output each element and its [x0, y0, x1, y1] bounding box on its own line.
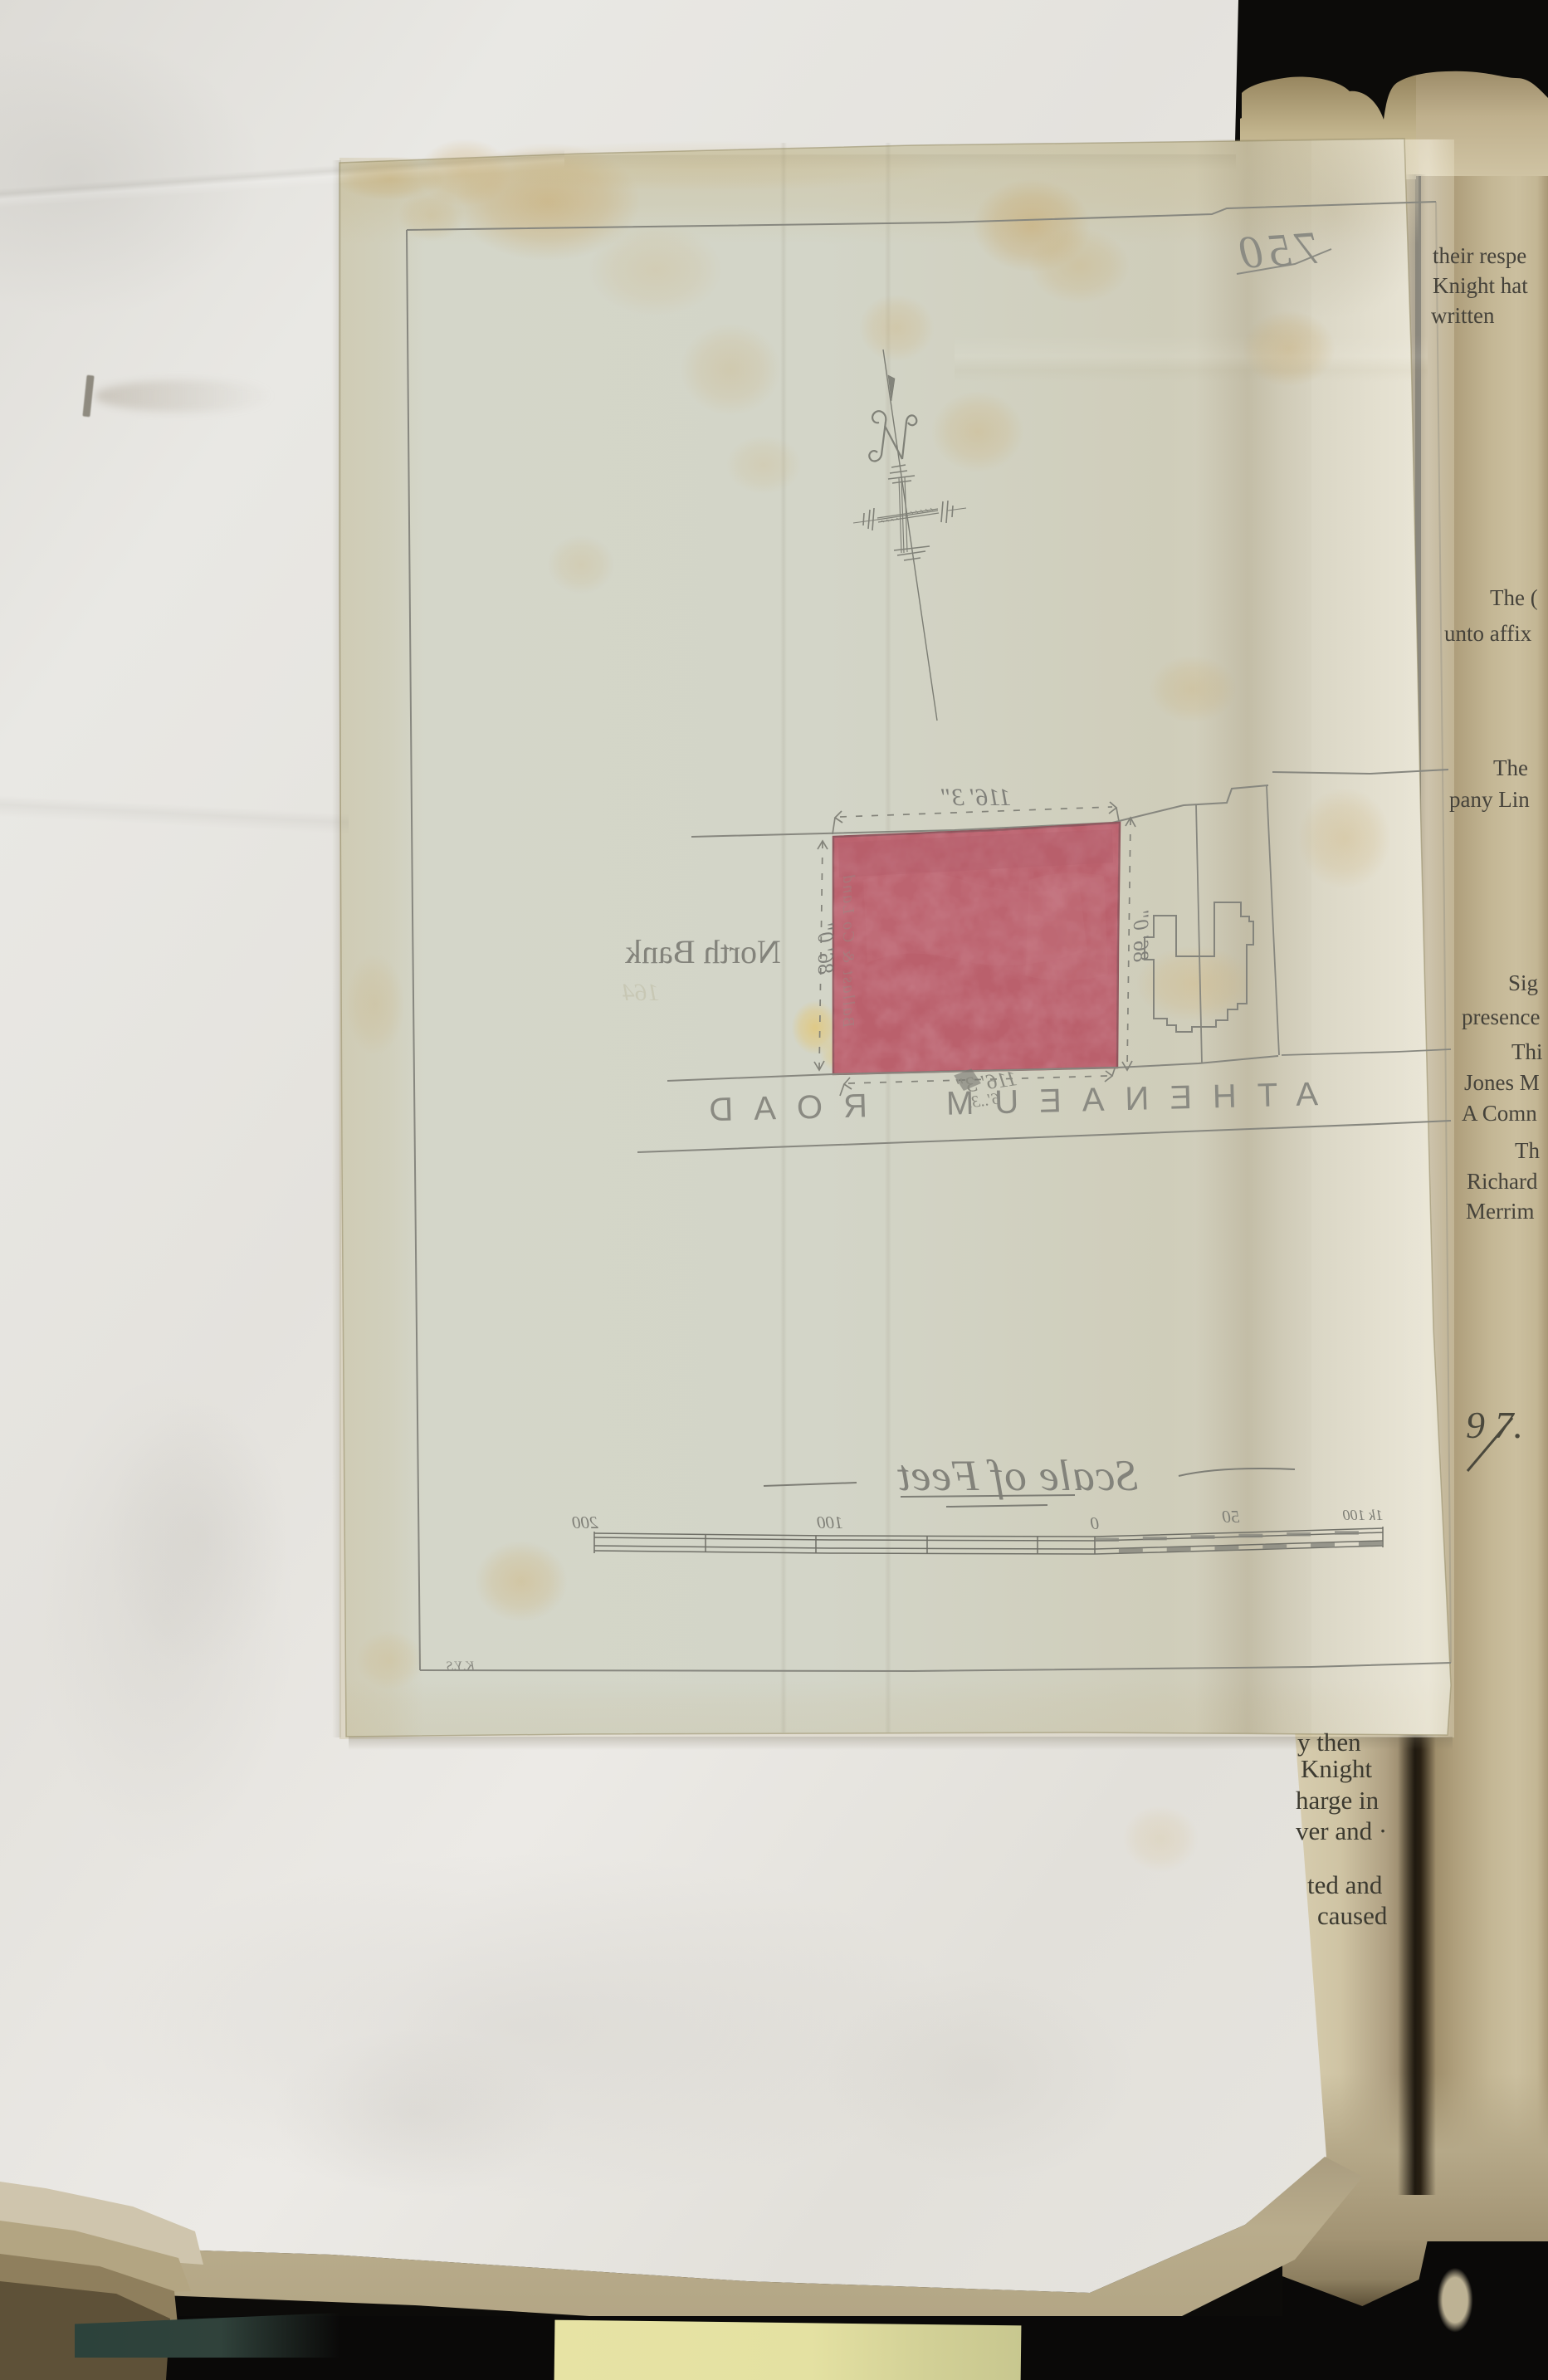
svg-text:ATHENAEUM ROAD: ATHENAEUM ROAD [688, 1076, 1319, 1129]
svg-text:86' 0": 86' 0" [813, 923, 837, 975]
svg-text:750: 750 [1233, 222, 1321, 280]
svg-text:100: 100 [817, 1513, 843, 1532]
svg-text:K.Y.S: K.Y.S [447, 1659, 476, 1674]
svg-text:1k 100: 1k 100 [1343, 1507, 1384, 1523]
svg-text:116' 3": 116' 3" [940, 784, 1011, 811]
svg-text:Ballast & Co Land: Ballast & Co Land [839, 873, 857, 1028]
svg-text:North Bank: North Bank [625, 933, 781, 970]
svg-text:164: 164 [623, 979, 660, 1006]
svg-text:86' 0": 86' 0" [1129, 911, 1153, 962]
svg-text:0: 0 [1090, 1513, 1099, 1533]
svg-text:200: 200 [572, 1513, 598, 1532]
svg-text:50: 50 [1222, 1507, 1240, 1527]
svg-text:Scale of Feet: Scale of Feet [897, 1452, 1138, 1500]
